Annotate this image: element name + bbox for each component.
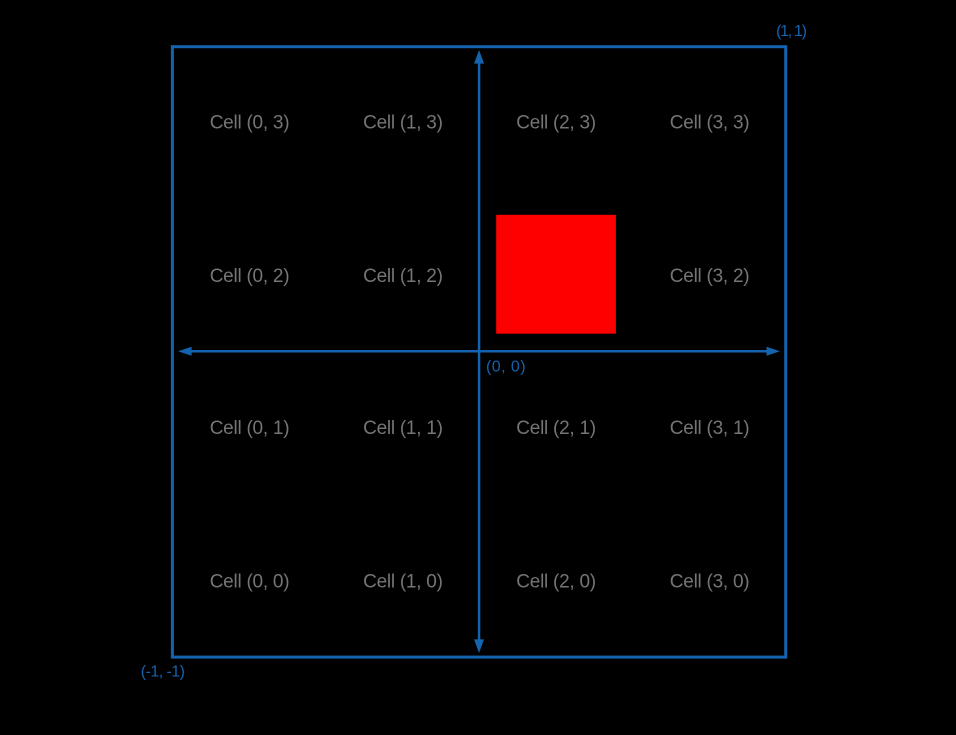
svg-text:Cell (0, 0): Cell (0, 0) — [210, 572, 290, 593]
svg-text:Cell (3, 0): Cell (3, 0) — [670, 572, 750, 593]
svg-text:Cell (2, 1): Cell (2, 1) — [516, 418, 596, 439]
svg-text:Cell (0, 2): Cell (0, 2) — [210, 266, 290, 287]
svg-text:Cell (3, 3): Cell (3, 3) — [670, 113, 750, 134]
svg-text:Cell (1, 2): Cell (1, 2) — [363, 266, 443, 287]
svg-text:(1, 1): (1, 1) — [776, 23, 807, 40]
svg-text:Cell (3, 1): Cell (3, 1) — [670, 418, 750, 439]
svg-text:Cell (1, 1): Cell (1, 1) — [363, 418, 443, 439]
svg-text:Cell (3, 2): Cell (3, 2) — [670, 266, 750, 287]
svg-text:Cell (0, 1): Cell (0, 1) — [210, 418, 290, 439]
svg-text:Cell (1, 3): Cell (1, 3) — [363, 113, 443, 134]
svg-text:Cell (2, 0): Cell (2, 0) — [516, 572, 596, 593]
svg-text:Cell (0, 3): Cell (0, 3) — [210, 113, 290, 134]
svg-text:(0, 0): (0, 0) — [486, 359, 526, 376]
svg-text:Cell (2, 3): Cell (2, 3) — [516, 113, 596, 134]
svg-text:(-1, -1): (-1, -1) — [141, 663, 185, 680]
svg-text:Cell (1, 0): Cell (1, 0) — [363, 572, 443, 593]
